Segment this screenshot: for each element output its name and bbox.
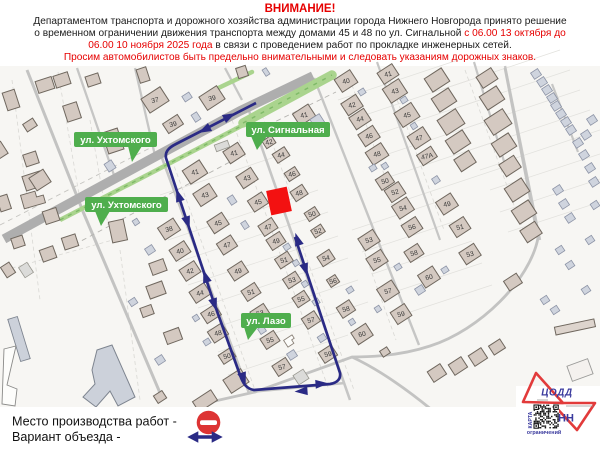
svg-text:ул. Ухтомского: ул. Ухтомского xyxy=(91,200,162,211)
svg-text:КАРТА: КАРТА xyxy=(528,411,534,428)
svg-text:ул. Лазо: ул. Лазо xyxy=(246,316,286,327)
svg-text:ул. Сигнальная: ул. Сигнальная xyxy=(251,125,324,136)
svg-text:ограничений: ограничений xyxy=(527,429,561,436)
svg-text:Вариант объезда -: Вариант объезда - xyxy=(12,430,121,444)
svg-text:НН: НН xyxy=(558,413,574,425)
svg-text:Место производства работ -: Место производства работ - xyxy=(12,415,177,429)
svg-text:ЦОДД: ЦОДД xyxy=(541,388,573,399)
svg-text:ул. Ухтомского: ул. Ухтомского xyxy=(80,135,151,146)
